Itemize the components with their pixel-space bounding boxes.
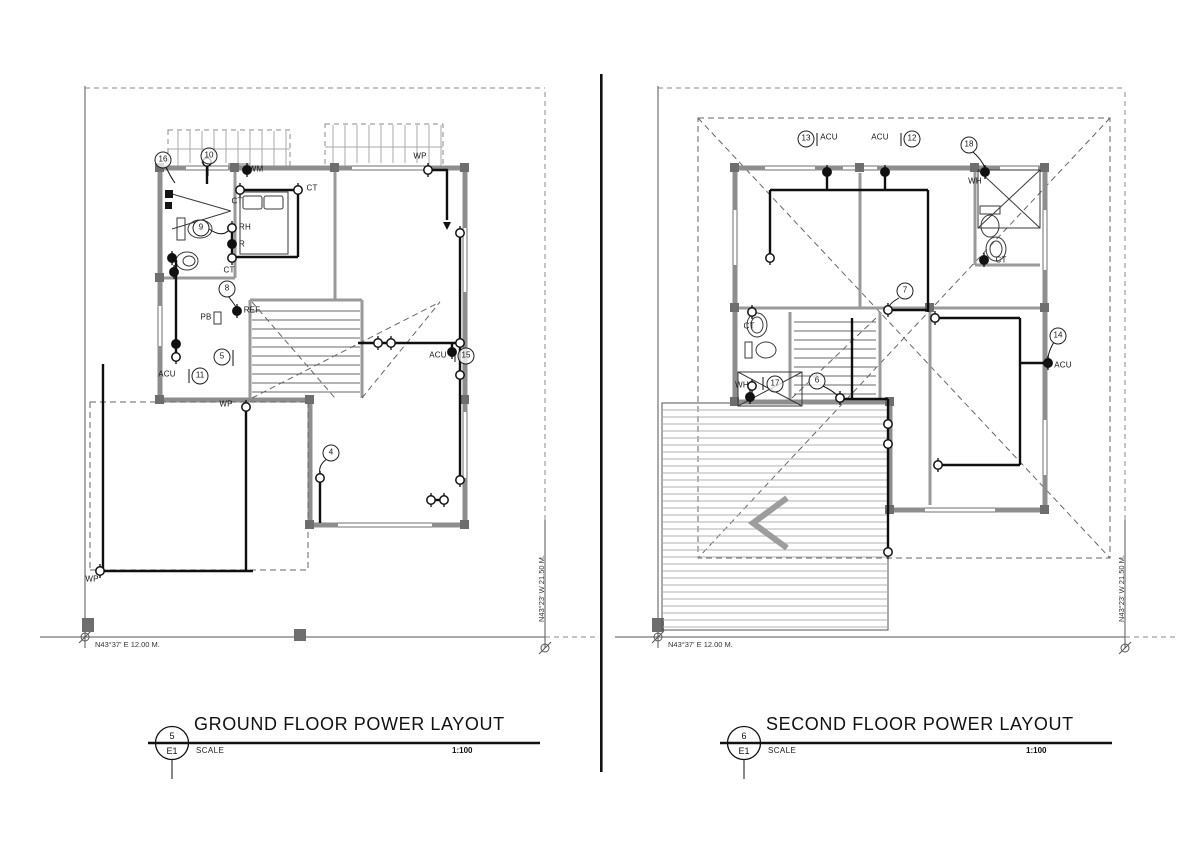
- deck-chevron-mark: [753, 498, 787, 548]
- second-fixtures: [738, 170, 1040, 406]
- ground-circuit-wiring: [100, 162, 460, 571]
- trellis-hatch-left: [168, 130, 290, 168]
- roof-outline: [698, 118, 1110, 558]
- ground-outlets: [96, 155, 464, 578]
- ground-floor-drawing: [40, 86, 598, 654]
- ground-stairs: [252, 302, 440, 398]
- second-circuit-wiring: [770, 176, 1048, 552]
- carport-outline: [90, 402, 308, 570]
- weatherhead-symbol: [443, 222, 451, 230]
- ground-walls: [155, 163, 470, 530]
- plan-linework: [0, 0, 1200, 848]
- drawing-sheet: 16 10 WM WP CT CT 9 RH R CT 8 REF PB 5 A…: [0, 0, 1200, 848]
- second-floor-drawing: [615, 86, 1178, 654]
- second-walls: [730, 163, 1050, 515]
- second-outlets: [746, 165, 1052, 559]
- sheet-divider-line: [600, 74, 603, 772]
- second-stairs: [792, 316, 878, 398]
- second-titleblock-graphics: [720, 727, 1112, 780]
- ground-titleblock-graphics: [148, 727, 540, 780]
- deck-hatch: [662, 403, 888, 630]
